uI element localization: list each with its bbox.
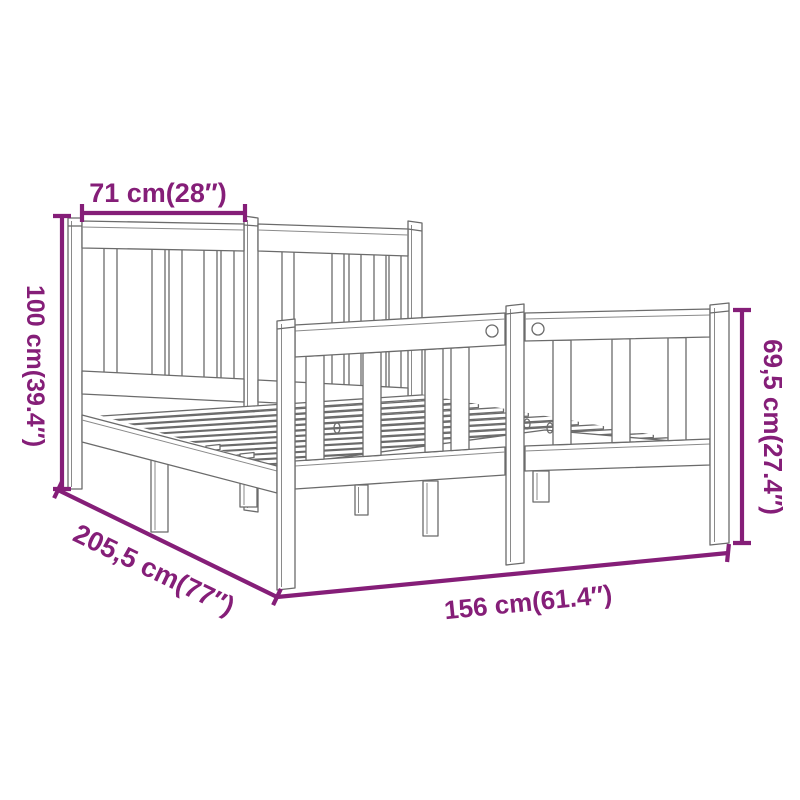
bed-frame-drawing: 71 cm(28″) 100 cm(39.4″) 205,5 cm(77″) 1… xyxy=(0,0,800,800)
product-dimension-diagram: 71 cm(28″) 100 cm(39.4″) 205,5 cm(77″) 1… xyxy=(0,0,800,800)
dim-label-frame-length: 205,5 cm(77″) xyxy=(69,518,240,621)
dim-footboard-height xyxy=(733,310,751,543)
dim-label-frame-width: 156 cm(61.4″) xyxy=(443,579,614,625)
bed-line-art xyxy=(68,216,729,590)
dim-label-headboard-width: 71 cm(28″) xyxy=(89,178,227,208)
dim-label-footboard-height: 69,5 cm(27.4″) xyxy=(758,339,788,515)
dim-label-headboard-height: 100 cm(39.4″) xyxy=(21,285,49,447)
